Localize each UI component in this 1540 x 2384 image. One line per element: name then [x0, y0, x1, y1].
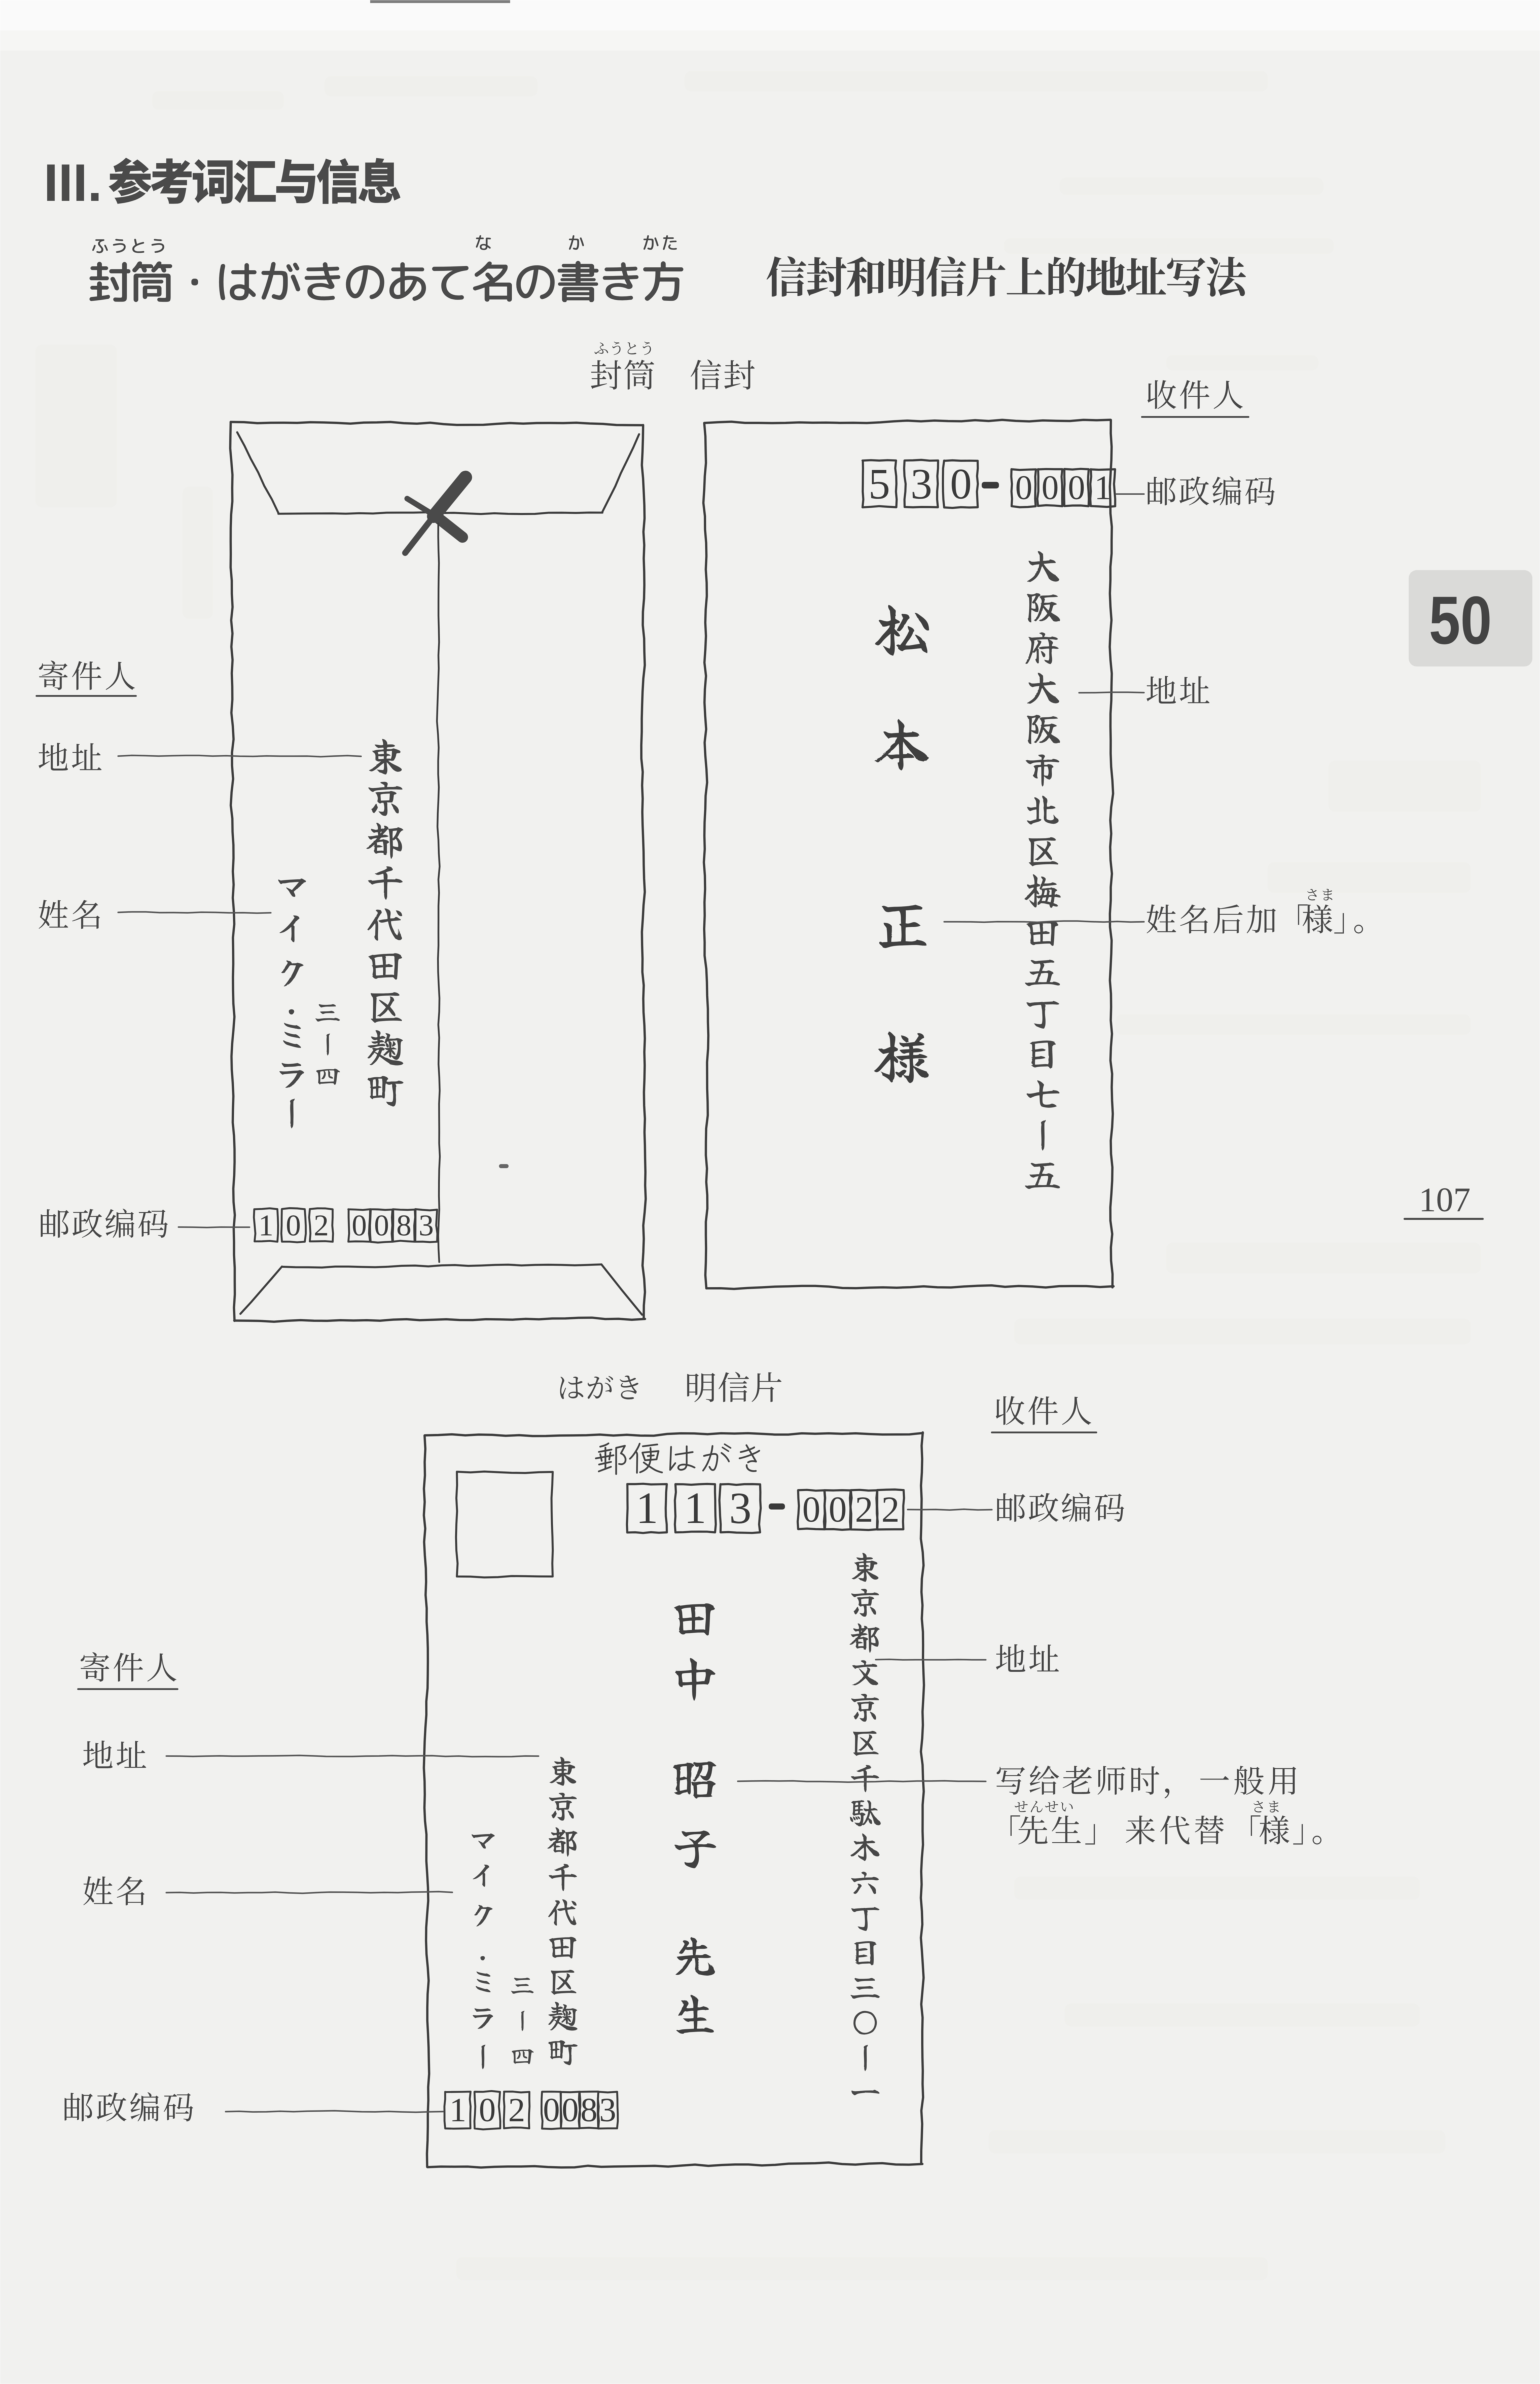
svg-text:3: 3 — [729, 1484, 751, 1533]
svg-text:III.: III. — [44, 154, 102, 213]
svg-text:2: 2 — [881, 1490, 900, 1530]
svg-text:2: 2 — [314, 1209, 329, 1242]
svg-text:1: 1 — [684, 1484, 706, 1533]
svg-text:8: 8 — [397, 1209, 412, 1242]
svg-text:0: 0 — [479, 2091, 495, 2129]
svg-text:3: 3 — [419, 1209, 434, 1242]
svg-text:8: 8 — [581, 2091, 597, 2129]
svg-text:0: 0 — [286, 1209, 301, 1242]
svg-text:0: 0 — [802, 1490, 820, 1530]
svg-text:0: 0 — [562, 2091, 579, 2129]
svg-text:0: 0 — [950, 460, 972, 508]
svg-text:50: 50 — [1429, 583, 1492, 658]
svg-text:0: 0 — [1068, 469, 1085, 507]
svg-text:0: 0 — [1015, 469, 1032, 507]
svg-text:3: 3 — [911, 460, 933, 508]
svg-text:0: 0 — [374, 1209, 389, 1242]
svg-text:2: 2 — [855, 1490, 873, 1530]
svg-text:107: 107 — [1419, 1180, 1471, 1219]
svg-text:0: 0 — [352, 1209, 367, 1242]
svg-text:0: 0 — [829, 1490, 847, 1530]
svg-text:1: 1 — [636, 1484, 658, 1533]
svg-text:2: 2 — [508, 2091, 525, 2129]
svg-text:5: 5 — [869, 460, 890, 508]
svg-text:0: 0 — [1042, 469, 1059, 507]
svg-text:3: 3 — [599, 2091, 616, 2129]
svg-text:1: 1 — [449, 2091, 466, 2129]
svg-text:1: 1 — [1094, 469, 1112, 507]
svg-text:1: 1 — [259, 1209, 274, 1242]
svg-text:0: 0 — [543, 2091, 560, 2129]
